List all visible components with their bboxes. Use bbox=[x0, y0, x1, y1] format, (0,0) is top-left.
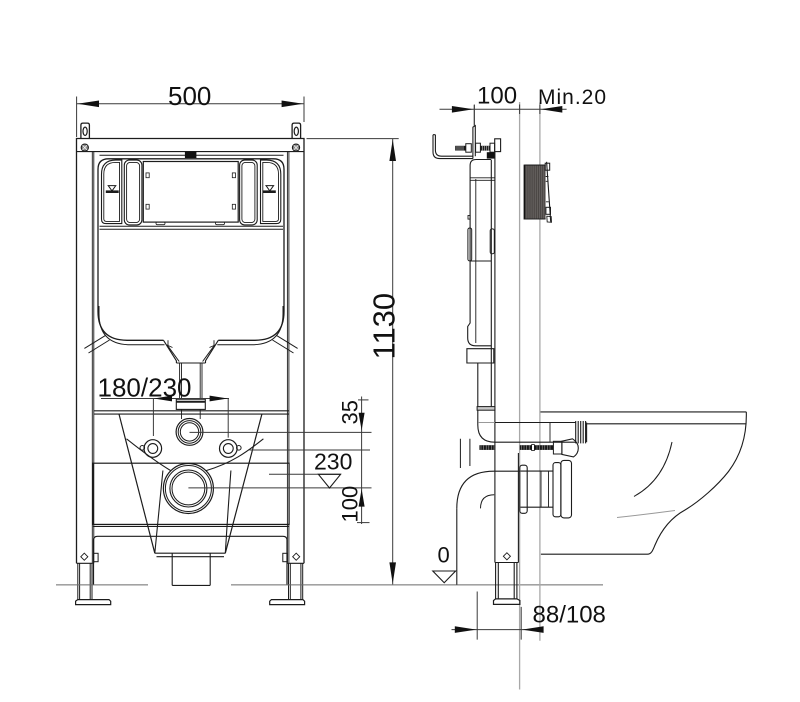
svg-text:Min.20: Min.20 bbox=[538, 86, 607, 109]
svg-text:500: 500 bbox=[168, 81, 211, 111]
svg-text:100: 100 bbox=[338, 486, 363, 523]
svg-text:35: 35 bbox=[338, 400, 363, 424]
svg-text:88/108: 88/108 bbox=[533, 602, 606, 629]
svg-text:100: 100 bbox=[477, 83, 517, 110]
svg-text:180/230: 180/230 bbox=[98, 373, 192, 403]
svg-text:230: 230 bbox=[314, 449, 352, 475]
svg-text:0: 0 bbox=[438, 543, 450, 568]
svg-text:1130: 1130 bbox=[367, 293, 402, 360]
